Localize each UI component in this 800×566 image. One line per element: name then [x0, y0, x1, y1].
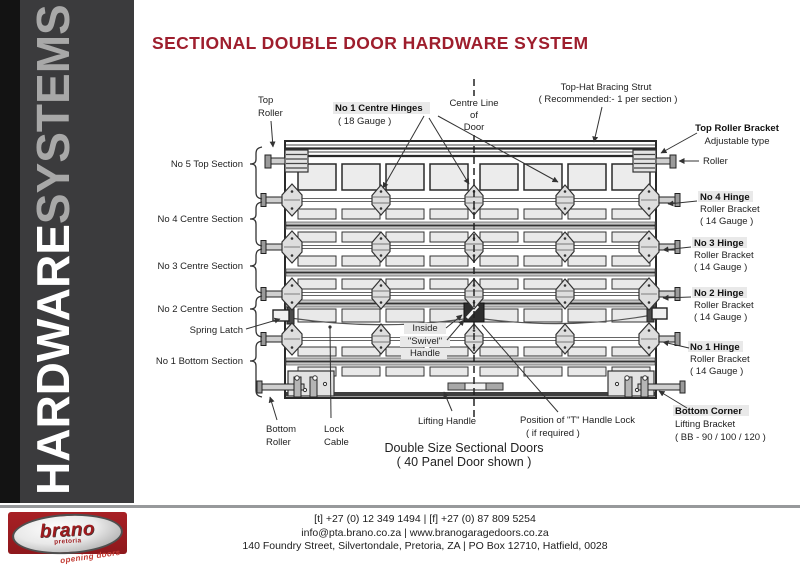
corner-bracket-right [608, 371, 685, 397]
diagram-caption-1: Double Size Sectional Doors [384, 441, 543, 455]
label-hinge2-l3: ( 14 Gauge ) [694, 312, 747, 323]
label-top-roller-1: Top [258, 95, 273, 106]
label-centre-line-1: Centre Line [449, 98, 498, 109]
section-braces [250, 147, 262, 397]
label-strut-title: Top-Hat Bracing Strut [561, 82, 652, 93]
left-black-strip [0, 0, 20, 503]
label-hinge2-title: No 2 Hinge [694, 288, 744, 299]
label-hinge1-l3: ( 14 Gauge ) [690, 366, 743, 377]
footer-line-web: info@pta.brano.co.za | www.branogaragedo… [130, 527, 720, 541]
label-swivel-3: Handle [410, 348, 440, 359]
label-no4-centre-section: No 4 Centre Section [157, 214, 243, 225]
footer-divider [0, 505, 800, 508]
label-bottom-corner-title: Bottom Corner [675, 406, 742, 417]
label-no2-centre-section: No 2 Centre Section [157, 304, 243, 315]
label-hinge2-l2: Roller Bracket [694, 300, 754, 311]
label-hinge4-title: No 4 Hinge [700, 192, 750, 203]
label-top-roller-2: Roller [258, 108, 283, 119]
brano-logo: brano pretoria [8, 512, 127, 554]
corner-bracket-left [257, 371, 334, 397]
label-bottom-roller-2: Roller [266, 437, 291, 448]
label-roller: Roller [703, 156, 728, 167]
label-t-handle-2: ( if required ) [526, 428, 580, 439]
label-no1-bottom-section: No 1 Bottom Section [156, 356, 243, 367]
footer-line-address: 140 Foundry Street, Silvertondale, Preto… [130, 540, 720, 554]
label-hinge3-title: No 3 Hinge [694, 238, 744, 249]
label-hinge3-l3: ( 14 Gauge ) [694, 262, 747, 273]
label-centre-line-2: of [470, 110, 478, 121]
label-bottom-corner-l3: ( BB - 90 / 100 / 120 ) [675, 432, 766, 443]
label-no5-top-section: No 5 Top Section [171, 159, 243, 170]
top-roller-right [633, 150, 676, 172]
diagram-caption-2: ( 40 Panel Door shown ) [397, 455, 532, 469]
logo-name: brano [39, 522, 95, 540]
door-diagram: Top Roller No 1 Centre Hinges ( 18 Gauge… [140, 60, 800, 505]
label-top-roller-bracket-sub: Adjustable type [705, 136, 770, 147]
sidebar: HARDWARESYSTEMS [20, 0, 134, 503]
label-hinge1-title: No 1 Hinge [690, 342, 740, 353]
label-hinge3-l2: Roller Bracket [694, 250, 754, 261]
label-swivel-2: "Swivel" [408, 336, 442, 347]
label-no3-centre-section: No 3 Centre Section [157, 261, 243, 272]
label-swivel-1: Inside [412, 323, 437, 334]
logo-subtitle: pretoria [54, 537, 82, 545]
sidebar-word-systems: SYSTEMS [27, 5, 79, 225]
label-t-handle-1: Position of "T" Handle Lock [520, 415, 635, 426]
label-centre-line-3: Door [464, 122, 485, 133]
sidebar-brand: HARDWARESYSTEMS [24, 0, 82, 500]
lifting-handle [448, 383, 503, 390]
label-centre-hinges-sub: ( 18 Gauge ) [338, 116, 391, 127]
label-bottom-corner-l2: Lifting Bracket [675, 419, 736, 430]
label-top-roller-bracket-title: Top Roller Bracket [695, 123, 780, 134]
label-spring-latch: Spring Latch [190, 325, 243, 336]
footer: [t] +27 (0) 12 349 1494 | [f] +27 (0) 87… [130, 513, 720, 554]
label-lock-cable-1: Lock [324, 424, 344, 435]
footer-line-phone: [t] +27 (0) 12 349 1494 | [f] +27 (0) 87… [130, 513, 720, 527]
label-centre-hinges-title: No 1 Centre Hinges [335, 103, 423, 114]
top-roller-left [265, 150, 308, 172]
label-hinge1-l2: Roller Bracket [690, 354, 750, 365]
label-hinge4-l3: ( 14 Gauge ) [700, 216, 753, 227]
sidebar-word-hardware: HARDWARE [27, 224, 79, 495]
label-strut-sub: ( Recommended:- 1 per section ) [539, 94, 678, 105]
label-bottom-roller-1: Bottom [266, 424, 296, 435]
label-lock-cable-2: Cable [324, 437, 349, 448]
door-bottom-edge [286, 392, 655, 397]
label-hinge4-l2: Roller Bracket [700, 204, 760, 215]
label-lifting-handle: Lifting Handle [418, 416, 476, 427]
page-title: SECTIONAL DOUBLE DOOR HARDWARE SYSTEM [152, 33, 588, 54]
